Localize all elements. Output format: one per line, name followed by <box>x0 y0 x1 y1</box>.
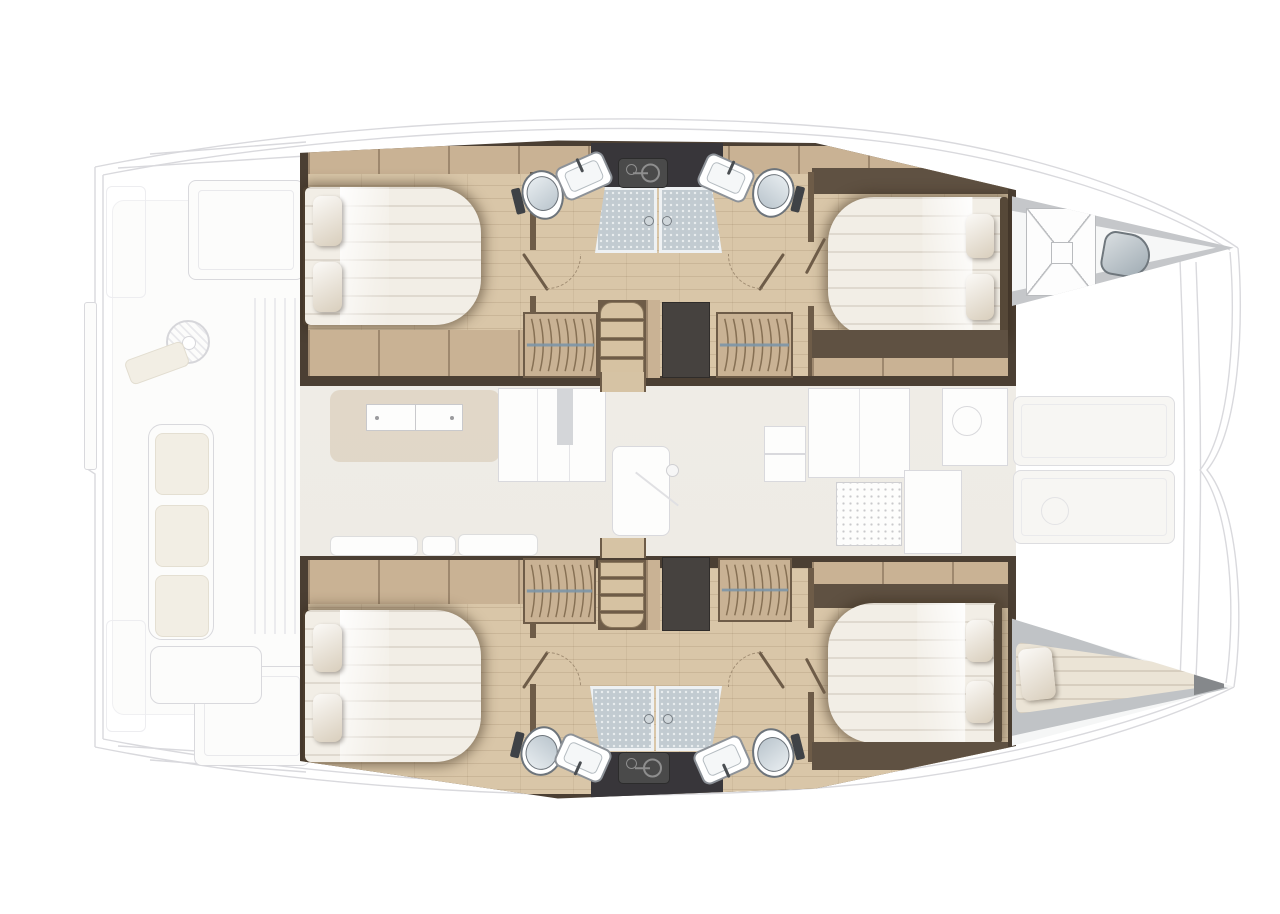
stair-tread <box>600 579 644 594</box>
pillow <box>313 262 342 312</box>
locker-lid-inner <box>1021 404 1167 458</box>
cockpit-bench <box>148 424 214 640</box>
partition-wall <box>808 172 814 242</box>
basin <box>705 161 747 196</box>
cabinet-divider <box>859 389 860 477</box>
door-swing-arc <box>728 652 763 687</box>
pillow <box>313 624 342 672</box>
bench-cushion <box>155 433 209 495</box>
cabinet-divider <box>537 389 538 481</box>
galley-stove <box>836 482 902 546</box>
arc <box>728 254 763 289</box>
galley-cabinet <box>808 388 910 478</box>
duvet-fold <box>340 187 389 325</box>
stair-tread <box>600 562 644 577</box>
basin <box>563 159 605 194</box>
partition-wall <box>808 568 814 628</box>
hanging-clothes-icon <box>525 560 594 622</box>
pillow <box>966 620 993 662</box>
port-fwd-headboard <box>1000 197 1008 337</box>
crossbeam-line-right <box>1196 262 1201 678</box>
bench-cushion <box>155 505 209 567</box>
hanging-clothes-icon <box>525 314 596 376</box>
appliance-panel <box>618 752 670 784</box>
pillow <box>313 694 342 742</box>
starboard-hull <box>300 556 1016 806</box>
companionway-opening <box>600 372 646 392</box>
technical-locker <box>662 302 710 378</box>
duvet-fold <box>917 603 965 743</box>
duvet-fold <box>340 610 389 762</box>
tall-cabinets <box>498 388 606 482</box>
pillow <box>1017 646 1056 701</box>
sideboard-cupboard <box>366 404 463 431</box>
galley-sink <box>952 406 982 436</box>
door-swing-arc <box>728 254 763 289</box>
wardrobe <box>523 312 598 378</box>
aft-seat <box>150 646 262 704</box>
stbd-aft-cabinet-band <box>308 560 533 604</box>
bow-stem-lines <box>1207 248 1240 687</box>
door-swing-arc <box>546 254 581 289</box>
pillow <box>966 274 994 320</box>
bow-stem-lines-inner <box>1200 252 1232 683</box>
companionway-opening <box>600 538 646 558</box>
power-icon <box>641 164 660 183</box>
basin <box>701 743 743 778</box>
galley-counter <box>904 470 962 554</box>
arc <box>546 652 581 687</box>
stbd-fwd-top-cabinet <box>812 562 1008 584</box>
door-knob <box>666 464 679 477</box>
port-fwd-lower-band <box>812 330 1008 358</box>
foredeck-locker <box>1013 396 1175 466</box>
shower-door-knob <box>644 216 654 226</box>
stair-pillar <box>646 560 660 630</box>
bow-locker-hatch <box>1026 208 1096 296</box>
port-aft-cabinet-band <box>308 330 533 376</box>
wardrobe <box>523 558 596 624</box>
appliance-panel <box>618 158 668 188</box>
companionway-stairs <box>598 560 646 630</box>
cupboard-knob <box>375 416 379 420</box>
hanging-clothes-icon <box>718 314 791 376</box>
stair-tread <box>600 321 644 338</box>
stair-pillar <box>646 300 660 378</box>
port-fwd-lower-cabinet <box>812 358 1008 376</box>
cabinet-gray-panel <box>557 389 573 445</box>
pillow <box>966 214 994 258</box>
cupboard-knob <box>450 416 454 420</box>
aft-cockpit-ghost <box>84 140 306 780</box>
basin <box>562 741 604 776</box>
sofa-cushion <box>422 536 456 556</box>
windlass-outline <box>1041 497 1069 525</box>
hatch-center <box>1051 242 1073 264</box>
deck-hatch-top <box>188 180 304 280</box>
power-icon <box>643 759 662 778</box>
side-locker-bottom <box>106 620 146 732</box>
crossbeam-line-left <box>1180 260 1185 680</box>
foredeck-locker <box>1013 470 1175 544</box>
cupboard-divider <box>415 405 416 430</box>
companionway-stairs <box>598 300 646 378</box>
wardrobe <box>716 312 793 378</box>
stair-tread <box>600 302 644 319</box>
galley-fridge-lower <box>764 454 806 482</box>
wardrobe <box>718 558 792 622</box>
duvet-fold <box>922 197 972 337</box>
stbd-fwd-headboard <box>994 603 1002 743</box>
transom-step <box>84 302 97 470</box>
sofa-cushion <box>458 534 538 556</box>
shower-door-knob <box>644 714 654 724</box>
stair-tread <box>600 613 644 628</box>
arc <box>546 254 581 289</box>
saloon <box>300 386 1016 556</box>
galley-fridge <box>764 426 806 454</box>
technical-locker <box>662 557 710 631</box>
bench-cushion <box>155 575 209 637</box>
stair-tread <box>600 340 644 357</box>
pillow <box>313 196 342 246</box>
sofa-cushion <box>330 536 418 556</box>
louvered-locker <box>254 298 302 634</box>
shower-door-knob <box>663 714 673 724</box>
port-hull <box>300 138 1016 386</box>
shower-door-knob <box>662 216 672 226</box>
catamaran-floor-plan <box>0 0 1280 914</box>
hanging-clothes-icon <box>720 560 790 620</box>
deck-hatch-top-inner <box>198 190 294 270</box>
door-swing-arc <box>546 652 581 687</box>
arc <box>728 652 763 687</box>
side-locker-top <box>106 186 146 298</box>
stair-tread <box>600 596 644 611</box>
pillow <box>966 681 993 723</box>
